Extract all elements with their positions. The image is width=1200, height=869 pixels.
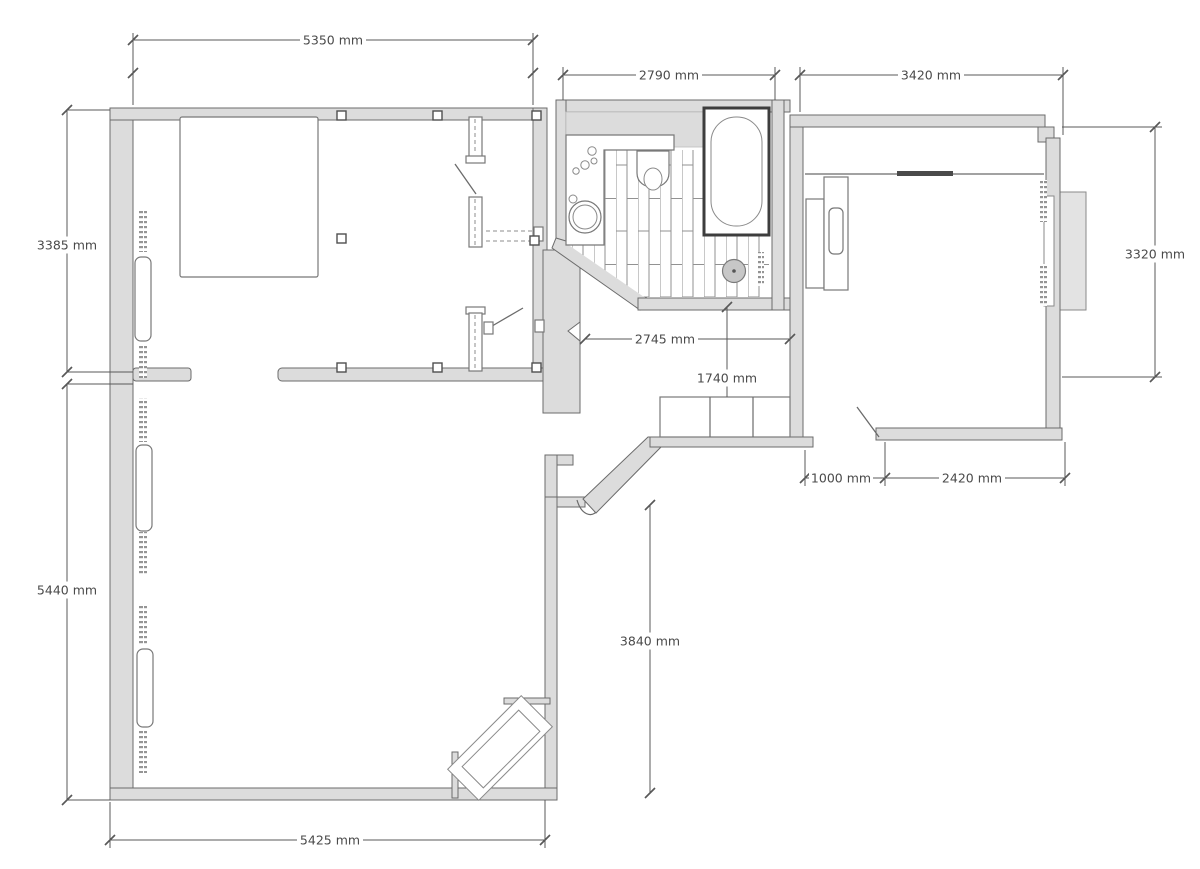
right-room-top-wall [790,115,1045,127]
door-swing [455,164,476,194]
window-label-mark [1040,264,1047,306]
radiator-label-mark [139,398,147,442]
dimension-bedroom-top: 5350 mm [300,32,366,49]
desk-side-panel [806,199,824,288]
dim-label: 2790 mm [639,68,699,83]
radiator-label-mark [139,210,147,252]
dim-label: 1000 mm [811,471,871,486]
door-opening-dashes [475,199,534,245]
chair-icon [829,208,843,254]
dimension-hall-width: 2745 mm [632,331,698,348]
hall-bottom-wall [650,437,813,447]
dim-label: 2745 mm [635,332,695,347]
dimension-right-room-right: 3320 mm [1122,246,1188,263]
dim-label: 3420 mm [901,68,961,83]
valve-icon [591,158,597,164]
dim-label: 5440 mm [37,583,97,598]
bedroom-bottom-wall-right-segment [278,368,547,381]
door-leaf-cap [466,156,485,163]
living-room [136,398,552,800]
dimension-right-room-bottom: 2420 mm [939,470,1005,487]
bathroom-left-wall [556,100,566,247]
outlet-marker [337,363,346,372]
outlet-marker [433,111,442,120]
dim-label: 3385 mm [37,238,97,253]
right-room [805,171,1047,306]
toilet-bowl-icon [644,168,662,190]
outlet-marker [337,234,346,243]
radiator-label-mark [139,604,147,646]
hall-living-diagonal-wall [583,437,661,513]
dim-label: 5350 mm [303,33,363,48]
valve-icon [588,147,596,155]
dimension-entry: 1000 mm [809,470,873,487]
counter-rail [897,171,953,176]
dim-label: 1740 mm [697,371,757,386]
dim-label: 3320 mm [1125,247,1185,262]
dim-label: 2420 mm [942,471,1002,486]
window-label-mark [1040,180,1047,222]
fixture-label-mark [758,252,764,286]
dimension-hall-height: 1740 mm [694,370,760,387]
outlet-marker [433,363,442,372]
radiator-label-mark [139,731,147,773]
outlet-marker [530,236,539,245]
dimension-living-bottom: 5425 mm [297,832,363,849]
dimension-living-inner: 3840 mm [617,633,683,650]
outlet-marker [532,363,541,372]
bathtub-icon [711,117,762,226]
dimension-bathroom-top: 2790 mm [636,67,702,84]
bathroom-bottom-wall [638,298,790,310]
bathroom-right-wall [772,100,784,310]
radiator-icon [135,257,151,341]
door-leaf [469,313,482,371]
right-room-left-wall [790,115,803,447]
radiator-icon [137,649,153,727]
floor-plan-page: 5350 mm 2790 mm 3420 mm 3385 mm 5440 mm … [0,0,1200,869]
bedroom [135,111,544,378]
dimension-living-left: 5440 mm [34,582,100,599]
dimension-right-room-top: 3420 mm [898,67,964,84]
floor-plan-drawing: 5350 mm 2790 mm 3420 mm 3385 mm 5440 mm … [0,0,1200,869]
living-room-right-wall [545,497,557,795]
dim-label: 3840 mm [620,634,680,649]
radiator-label-mark [139,344,147,378]
hallway [660,397,879,437]
dim-label: 5425 mm [300,833,360,848]
sink-tap-icon [569,195,577,203]
bed-icon [180,117,318,277]
right-room-bottom-wall [876,428,1062,440]
door-stop [535,320,544,332]
left-exterior-wall [110,108,133,800]
entry-door-swing [857,407,879,437]
sink-basin-icon [573,205,597,229]
valve-icon [573,168,579,174]
valve-icon [581,161,589,169]
door-stop [484,322,493,334]
hall-closet [660,397,790,437]
floor-drain-center [732,269,736,273]
radiator-label-mark [139,532,147,574]
dimension-bedroom-left: 3385 mm [34,237,100,254]
outlet-marker [532,111,541,120]
radiator-icon [136,445,152,531]
outlet-marker [337,111,346,120]
